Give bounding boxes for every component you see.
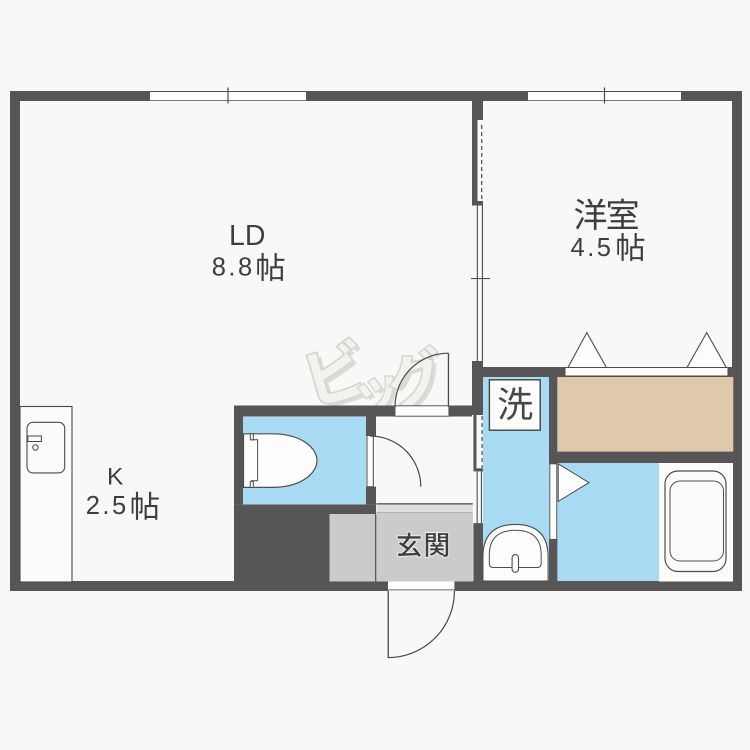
svg-text:K: K — [107, 464, 124, 491]
svg-text:8.8: 8.8 — [212, 253, 255, 281]
svg-text:4.5: 4.5 — [571, 234, 614, 262]
svg-text:2.5: 2.5 — [86, 492, 129, 520]
svg-text:LD: LD — [229, 220, 265, 252]
